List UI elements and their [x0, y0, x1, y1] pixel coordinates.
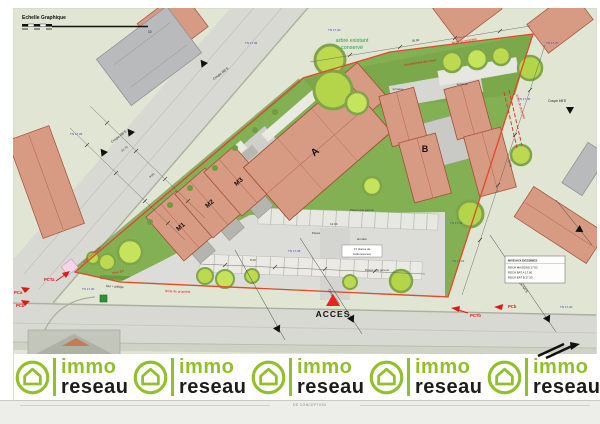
- immo-reseau-logo: immoreseau: [486, 357, 600, 397]
- svg-text:5.00: 5.00: [250, 258, 256, 262]
- brand-immo: immo: [415, 357, 483, 377]
- brand-reseau: reseau: [61, 377, 129, 397]
- logo-band: immoreseau immoreseau immoreseau immores…: [14, 354, 597, 400]
- svg-text:TN 17.05: TN 17.05: [245, 41, 258, 45]
- svg-text:TN 17.47: TN 17.47: [546, 41, 559, 45]
- svg-text:TN 17.30: TN 17.30: [82, 287, 95, 291]
- parking-count-box: 13 places de stationnement: [342, 245, 382, 257]
- scale-end-label: 10: [148, 30, 152, 34]
- titleblock-rule: [360, 405, 590, 406]
- paves-label: Pavés: [312, 231, 321, 235]
- house-circle-icon: [368, 359, 405, 396]
- titleblock-tiny-text: DE CONCEPTION: [293, 403, 326, 407]
- immo-reseau-logo: immoreseau: [132, 357, 250, 397]
- svg-text:TN 17.63: TN 17.63: [452, 259, 465, 263]
- svg-text:12.00: 12.00: [330, 222, 338, 226]
- logo-divider: [53, 358, 56, 396]
- tree-note-line1: arbre existant: [336, 38, 369, 44]
- brand-reseau: reseau: [179, 377, 247, 397]
- svg-text:TN 17.43: TN 17.43: [450, 221, 463, 225]
- levels-legend: NIVEAUX DESSINES RDCH MAISONS 17.63 RDCH…: [505, 256, 565, 283]
- house-circle-icon: [486, 359, 523, 396]
- brand-immo: immo: [179, 357, 247, 377]
- titleblock-strip: DE CONCEPTION: [0, 400, 600, 424]
- pcta-label: PCTa: [44, 277, 55, 282]
- brand-immo: immo: [297, 357, 365, 377]
- levels-title: NIVEAUX DESSINES: [508, 259, 537, 263]
- levels-row1: RDCH MAISONS 17.63: [508, 266, 538, 270]
- logo-divider: [525, 358, 528, 396]
- brand-reseau: reseau: [297, 377, 365, 397]
- logo-divider: [171, 358, 174, 396]
- tree-note-line2: conservé: [341, 45, 363, 51]
- house-circle-icon: [14, 359, 51, 396]
- logo-divider: [289, 358, 292, 396]
- pcb-right-label: PCb: [508, 304, 517, 309]
- svg-text:TN 17.45: TN 17.45: [518, 97, 531, 101]
- section-bbr-label: Coupe bB'S: [548, 99, 567, 103]
- enrobe-label: Enrobé: [357, 237, 367, 241]
- site-plan-page: Echelle Graphique 10 arbre existant cons…: [0, 0, 600, 424]
- levels-row2: RDCH BAT A 17.60: [508, 271, 533, 275]
- terrasse-label-1: terrasse: [393, 87, 404, 91]
- logo-divider: [407, 358, 410, 396]
- parking-count-line2: stationnement: [353, 252, 371, 256]
- immo-reseau-logo: immoreseau: [250, 357, 368, 397]
- immo-reseau-logo: immoreseau: [14, 357, 132, 397]
- parking-count-line1: 13 places de: [354, 247, 371, 251]
- brand-reseau: reseau: [533, 377, 600, 397]
- titleblock-rule: [20, 405, 270, 406]
- house-circle-icon: [132, 359, 169, 396]
- svg-text:TN 17.40: TN 17.40: [328, 28, 341, 32]
- brand-immo: immo: [533, 357, 600, 377]
- paves-gris-label-2: Pavés gris poreux: [365, 268, 390, 272]
- house-circle-icon: [250, 359, 287, 396]
- svg-text:TN 17.38: TN 17.38: [288, 249, 301, 253]
- paves-gris-label-1: Pavés gris poreux: [350, 208, 375, 212]
- svg-text:TN 17.05: TN 17.05: [70, 132, 83, 136]
- brand-reseau: reseau: [415, 377, 483, 397]
- left-margin: [0, 0, 13, 424]
- levels-row3: RDCH BAT B 17.50: [508, 276, 533, 280]
- svg-text:TN 17.40: TN 17.40: [560, 305, 573, 309]
- brand-immo: immo: [61, 357, 129, 377]
- immo-reseau-logo: immoreseau: [368, 357, 486, 397]
- pctb-label: PCTb: [470, 313, 481, 318]
- pcb-left-label: PCb: [16, 303, 25, 308]
- access-label: ACCES: [316, 309, 351, 319]
- pca-label: PCa: [14, 290, 23, 295]
- utility-marker: [100, 295, 107, 302]
- north-arrow-icon: [534, 336, 582, 360]
- building-b-label: B: [422, 144, 429, 154]
- terrasse-label-2: terrasse: [457, 82, 468, 86]
- top-margin: [0, 0, 600, 8]
- scale-title: Echelle Graphique: [22, 15, 66, 21]
